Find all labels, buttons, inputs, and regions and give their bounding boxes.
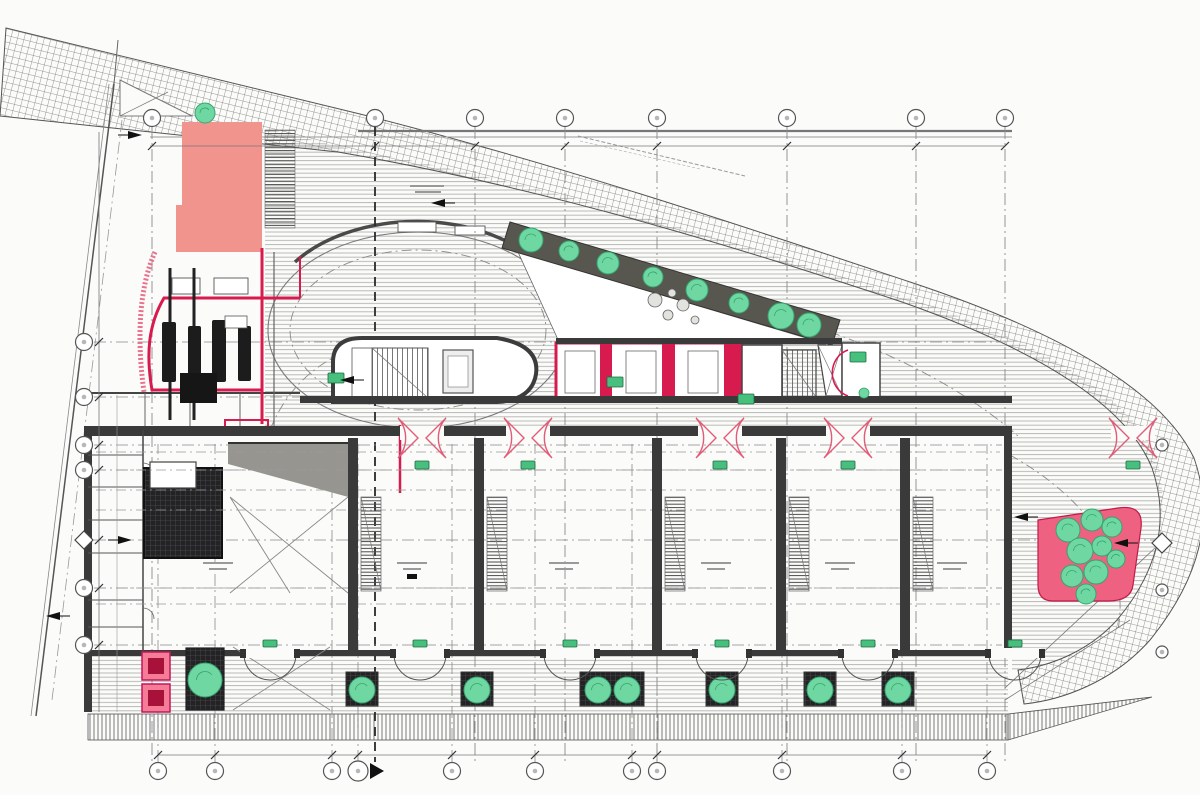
bay-label-bar — [203, 562, 233, 564]
grid-bubble-glyph — [450, 769, 455, 774]
door-opening — [394, 648, 446, 658]
pink-zone-step — [176, 205, 184, 252]
grid-bubble-glyph — [655, 769, 660, 774]
tree — [597, 252, 619, 274]
grid-bubble-glyph — [82, 395, 87, 400]
tree — [1081, 509, 1103, 531]
wall-bank-north — [556, 338, 842, 344]
tree — [1107, 550, 1125, 568]
floorplan-page — [0, 0, 1200, 795]
floorplan-canvas — [0, 0, 1200, 795]
tree — [768, 303, 794, 329]
exit-badge — [521, 461, 535, 469]
exit-badge — [607, 377, 623, 387]
tree — [195, 103, 215, 123]
wall-atrium-south — [300, 396, 1012, 403]
bay-label-bar — [701, 562, 731, 564]
exit-badge — [715, 640, 729, 647]
door-opening — [400, 426, 444, 440]
door-hinge — [892, 649, 898, 658]
door-opening — [244, 648, 296, 658]
exit-badge — [263, 640, 277, 647]
green-dot — [859, 388, 869, 398]
grid-bubble-glyph — [1160, 650, 1165, 655]
door-opening — [696, 648, 748, 658]
tree — [1067, 538, 1093, 564]
grid-bubble-glyph — [156, 769, 161, 774]
parking-tick-column — [265, 130, 295, 228]
door-hinge — [594, 649, 600, 658]
grid-bubble-glyph — [82, 340, 87, 345]
bay-label-bar — [403, 568, 421, 570]
grid-bubble-glyph — [914, 116, 919, 121]
bay-label-bar — [943, 568, 961, 570]
bay-label-bar — [555, 568, 573, 570]
tree — [1084, 560, 1108, 584]
grid-bubble-glyph — [82, 468, 87, 473]
tree — [519, 228, 543, 252]
grid-bubble-glyph — [82, 643, 87, 648]
wall-retail-east — [1004, 426, 1012, 658]
bay-label-bar — [825, 562, 855, 564]
door-opening — [826, 426, 870, 440]
door-hinge — [294, 649, 300, 658]
door-hinge — [240, 649, 246, 658]
tree — [797, 313, 821, 337]
bay-pier — [348, 438, 358, 650]
door-hinge — [838, 649, 844, 658]
door-hinge — [390, 649, 396, 658]
grid-bubble-glyph — [533, 769, 538, 774]
grid-bubble-glyph — [1003, 116, 1008, 121]
bay-label-bar — [707, 568, 725, 570]
tiny-label-bar — [410, 185, 444, 187]
tree — [643, 267, 663, 287]
grid-bubble-glyph — [563, 116, 568, 121]
bay-pier — [652, 438, 662, 650]
tree — [188, 663, 222, 697]
bay-pier — [900, 438, 910, 650]
tree — [464, 677, 490, 703]
exit-badge — [415, 461, 429, 469]
grid-bubble-glyph — [785, 116, 790, 121]
bay-label-mark — [407, 574, 417, 579]
exit-badge — [850, 352, 866, 362]
grid-bubble-glyph — [900, 769, 905, 774]
exit-badge — [841, 461, 855, 469]
bay-pier — [776, 438, 786, 650]
bay-label-bar — [831, 568, 849, 570]
door-hinge — [540, 649, 546, 658]
paving-walkway — [88, 656, 1008, 712]
grid-bubble-glyph — [213, 769, 218, 774]
door-hinge — [692, 649, 698, 658]
bay-label-bar — [937, 562, 967, 564]
tree — [807, 677, 833, 703]
tree — [585, 677, 611, 703]
grid-bubble-glyph — [655, 116, 660, 121]
grid-bubble-glyph — [473, 116, 478, 121]
grid-bubble-glyph — [82, 443, 87, 448]
tiny-label-bar — [415, 191, 441, 193]
bay-label-bar — [549, 562, 579, 564]
door-hinge — [985, 649, 991, 658]
door-hinge — [444, 649, 450, 658]
exit-badge — [861, 640, 875, 647]
central-core — [333, 338, 536, 402]
exit-badge — [1008, 640, 1022, 647]
bay-label-bar — [209, 568, 227, 570]
bay-label-bar — [397, 562, 427, 564]
exit-badge — [563, 640, 577, 647]
door-opening — [842, 648, 894, 658]
door-opening — [989, 648, 1041, 658]
exit-badge — [328, 373, 344, 383]
tree — [559, 241, 579, 261]
grid-bubble-glyph — [1160, 588, 1165, 593]
exit-badge — [738, 394, 754, 404]
exit-badge — [1126, 461, 1140, 469]
door-opening — [1111, 426, 1155, 440]
tree — [349, 677, 375, 703]
door-opening — [544, 648, 596, 658]
tree — [709, 677, 735, 703]
grid-bubble-glyph — [780, 769, 785, 774]
grid-bubble-glyph — [373, 116, 378, 121]
grid-bubble-glyph — [150, 116, 155, 121]
door-hinge — [1039, 649, 1045, 658]
door-hinge — [746, 649, 752, 658]
tree — [1102, 517, 1122, 537]
grid-bubble-glyph — [1160, 443, 1165, 448]
tree — [614, 677, 640, 703]
grid-bubble-glyph — [985, 769, 990, 774]
exit-badge — [413, 640, 427, 647]
elevator-bank — [556, 343, 742, 401]
door-opening — [698, 426, 742, 440]
tree — [885, 677, 911, 703]
grid-bubble-glyph — [330, 769, 335, 774]
pink-zone — [182, 122, 262, 252]
bay-pier — [474, 438, 484, 650]
grid-bubble-glyph — [630, 769, 635, 774]
door-opening — [506, 426, 550, 440]
tree — [686, 279, 708, 301]
grid-bubble-glyph — [356, 769, 361, 774]
exit-badge — [713, 461, 727, 469]
tree — [1061, 565, 1083, 587]
tree — [729, 293, 749, 313]
tree — [1076, 584, 1096, 604]
grid-bubble-glyph — [82, 586, 87, 591]
